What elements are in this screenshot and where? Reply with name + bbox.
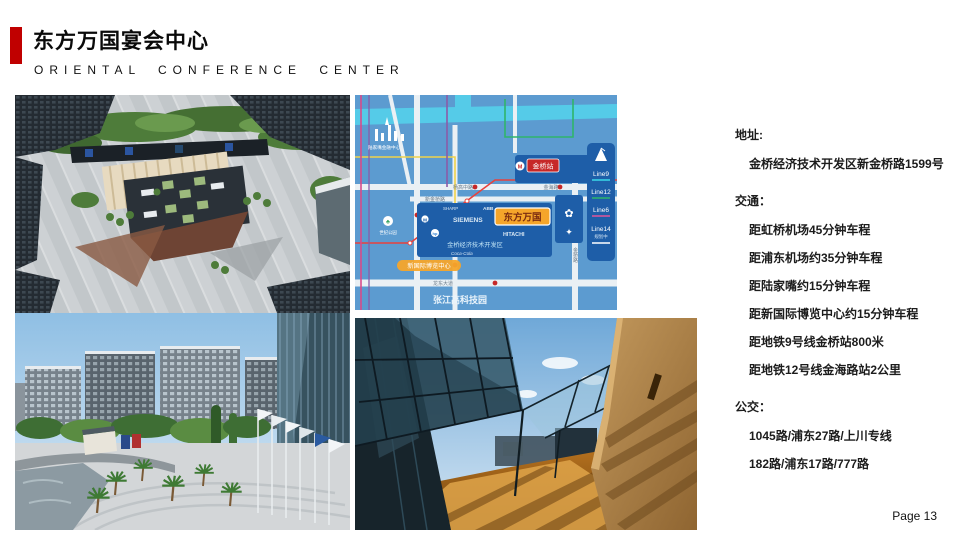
bus-heading: 公交： xyxy=(735,398,950,415)
transport-item: 距地铁9号线金桥站800米 xyxy=(735,336,950,349)
photo-campus-view xyxy=(15,313,350,530)
photo-entrance-canopy xyxy=(355,318,697,530)
accent-bar xyxy=(10,27,22,64)
svg-text:世纪公园: 世纪公园 xyxy=(379,229,397,236)
svg-text:Coca-Cola: Coca-Cola xyxy=(451,251,473,256)
svg-text:♣: ♣ xyxy=(386,220,390,226)
expo-badge: 新国际博览中心 xyxy=(397,260,461,271)
svg-text:杨高中路: 杨高中路 xyxy=(453,184,473,191)
bus-item: 182路/浦东17路/777路 xyxy=(735,458,950,471)
info-panel: 地址: 金桥经济技术开发区新金桥路1599号 交通： 距虹桥机场45分钟车程 距… xyxy=(735,126,950,492)
slide-subtitle: ORIENTAL CONFERENCE CENTER xyxy=(34,63,405,77)
bus-item: 1045路/浦东27路/上川专线 xyxy=(735,430,950,443)
page-number: Page 13 xyxy=(892,509,937,523)
svg-text:M: M xyxy=(423,217,427,222)
station-badge: 金桥站 xyxy=(533,162,554,171)
bus-section: 公交： 1045路/浦东27路/上川专线 182路/浦东17路/777路 xyxy=(735,398,950,471)
svg-text:M: M xyxy=(518,165,523,171)
svg-text:规划中: 规划中 xyxy=(594,233,607,240)
svg-text:Line12: Line12 xyxy=(591,189,611,196)
transport-item: 距浦东机场约35分钟车程 xyxy=(735,252,950,265)
svg-text:ABB: ABB xyxy=(483,206,494,212)
svg-text:龙东大道: 龙东大道 xyxy=(433,280,453,287)
svg-text:金桥经济技术开发区: 金桥经济技术开发区 xyxy=(447,241,503,249)
slide: 东方万国宴会中心 ORIENTAL CONFERENCE CENTER xyxy=(0,0,960,540)
transport-item: 距新国际博览中心约15分钟车程 xyxy=(735,308,950,321)
svg-text:Line6: Line6 xyxy=(593,207,609,214)
flower-logo-icon: ✿ xyxy=(564,208,573,220)
compass-logo-icon: ✦ xyxy=(565,227,573,237)
address-heading: 地址: xyxy=(735,126,950,143)
svg-text:HITACHI: HITACHI xyxy=(503,232,525,238)
district-label: 张江高科技园 xyxy=(433,294,487,305)
svg-text:Line9: Line9 xyxy=(593,171,609,178)
address-line: 金桥经济技术开发区新金桥路1599号 xyxy=(735,158,950,171)
svg-text:新国际博览中心: 新国际博览中心 xyxy=(407,262,450,270)
metro-legend: Line9 Line12 Line6 Line14 规划中 xyxy=(587,143,615,261)
transport-item: 距陆家嘴约15分钟车程 xyxy=(735,280,950,293)
transport-item: 距虹桥机场45分钟车程 xyxy=(735,224,950,237)
svg-text:新金桥路: 新金桥路 xyxy=(425,196,445,203)
svg-text:陆家嘴金融中心: 陆家嘴金融中心 xyxy=(368,144,401,151)
transport-heading: 交通： xyxy=(735,192,950,209)
photo-location-map: ✿ ✦ 杨高中路 金海路 新金桥路 龙东大道 金桥路 陆家嘴金融中心 ♣ 世纪公… xyxy=(355,95,617,310)
address-section: 地址: 金桥经济技术开发区新金桥路1599号 xyxy=(735,126,950,171)
svg-text:东方万国: 东方万国 xyxy=(503,212,541,224)
svg-text:金桥路: 金桥路 xyxy=(572,247,578,264)
svg-text:SIEMENS: SIEMENS xyxy=(453,217,483,224)
transport-item: 距地铁12号线金海路站2公里 xyxy=(735,364,950,377)
svg-text:SHARP: SHARP xyxy=(443,206,458,211)
transport-section: 交通： 距虹桥机场45分钟车程 距浦东机场约35分钟车程 距陆家嘴约15分钟车程… xyxy=(735,192,950,377)
svg-text:hp: hp xyxy=(433,231,438,236)
venue-badge: 东方万国 xyxy=(495,208,550,225)
slide-title: 东方万国宴会中心 xyxy=(33,25,209,55)
svg-text:Line14: Line14 xyxy=(591,226,611,233)
svg-text:金海路: 金海路 xyxy=(543,184,558,191)
photo-aerial-plaza xyxy=(15,95,350,313)
